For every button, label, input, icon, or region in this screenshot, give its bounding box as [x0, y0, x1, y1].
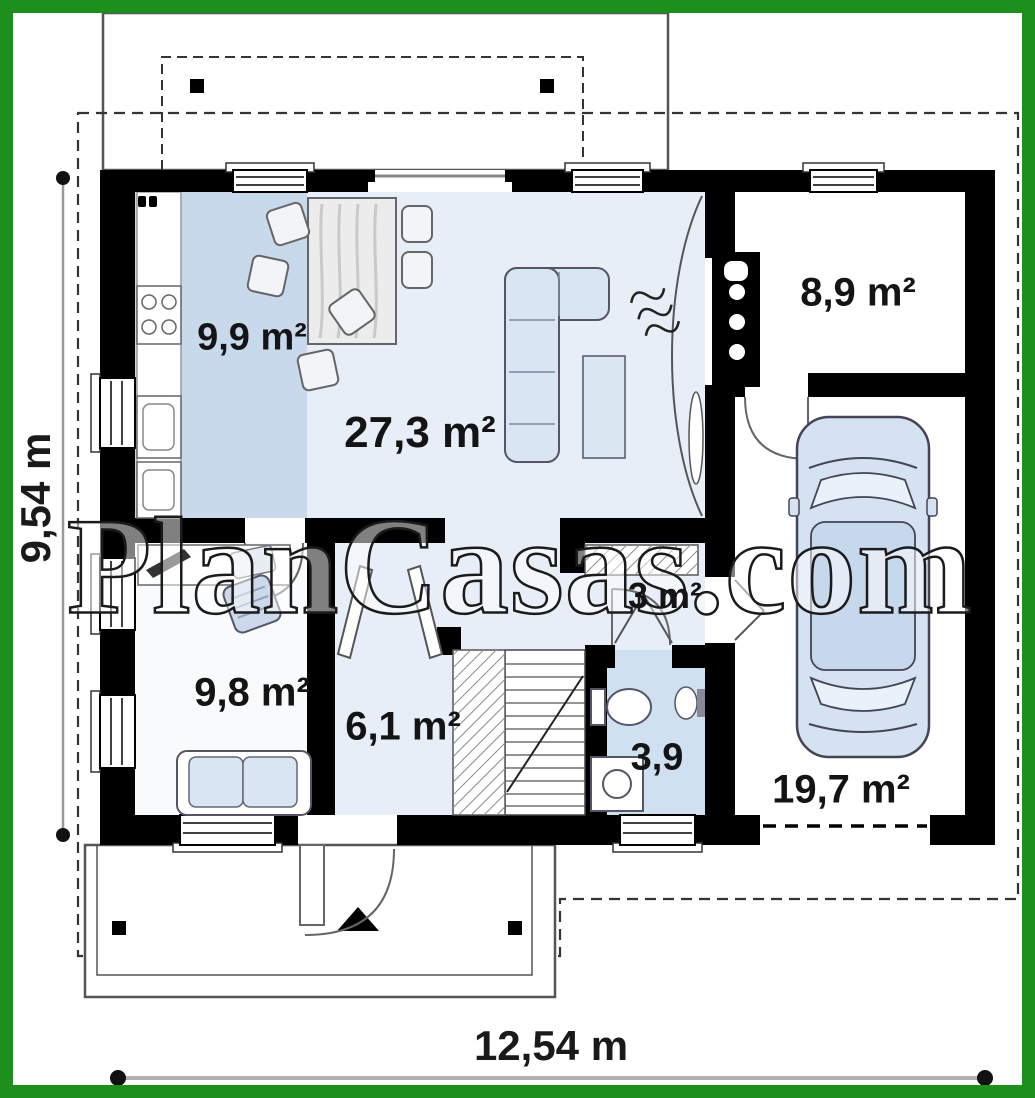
porch-post: [508, 921, 522, 935]
stairs: [505, 650, 585, 815]
terrace-door: [368, 170, 512, 192]
bedroom-sofa: [177, 751, 311, 815]
decor: [689, 392, 703, 484]
vent-icon: [138, 196, 146, 207]
floor-plan-page: PlanCasas.com 9,9 m² 27,3 m² 8,9 m² 3 m²…: [0, 0, 1035, 1098]
terrace-post: [190, 79, 204, 93]
window: [565, 163, 650, 192]
garage-area-label: 19,7 m²: [772, 768, 910, 813]
coffee-table: [583, 356, 625, 458]
terrace-post: [540, 79, 554, 93]
window: [803, 163, 884, 192]
window: [91, 374, 135, 452]
stove: [137, 286, 181, 344]
utility-area-label: 8,9 m²: [800, 271, 916, 316]
window: [613, 815, 702, 852]
bathroom-area-label: 3,9: [631, 737, 684, 780]
sink: [137, 396, 181, 458]
height-dimension-label: 9,54 m: [12, 433, 60, 564]
mirror: [697, 689, 705, 717]
width-dimension-label: 12,54 m: [474, 1022, 628, 1070]
bedroom-area-label: 9,8 m²: [194, 671, 310, 716]
closet-area-label: 3 m²: [628, 575, 702, 617]
kitchen-area-label: 9,9 m²: [197, 317, 307, 360]
kitchen-furniture: [137, 286, 181, 518]
chimney-boiler: [712, 252, 760, 387]
sink: [675, 687, 697, 719]
terrace: [103, 13, 668, 170]
window: [91, 691, 135, 772]
hall-area-label: 6,1 m²: [345, 705, 461, 750]
toilet: [591, 689, 651, 725]
dimension-line-bottom: [110, 1070, 993, 1086]
vent-icon: [149, 196, 157, 207]
window: [173, 815, 282, 852]
living-area-label: 27,3 m²: [344, 408, 496, 458]
porch-post: [112, 921, 126, 935]
watermark: PlanCasas.com: [67, 487, 973, 646]
window: [226, 163, 314, 192]
